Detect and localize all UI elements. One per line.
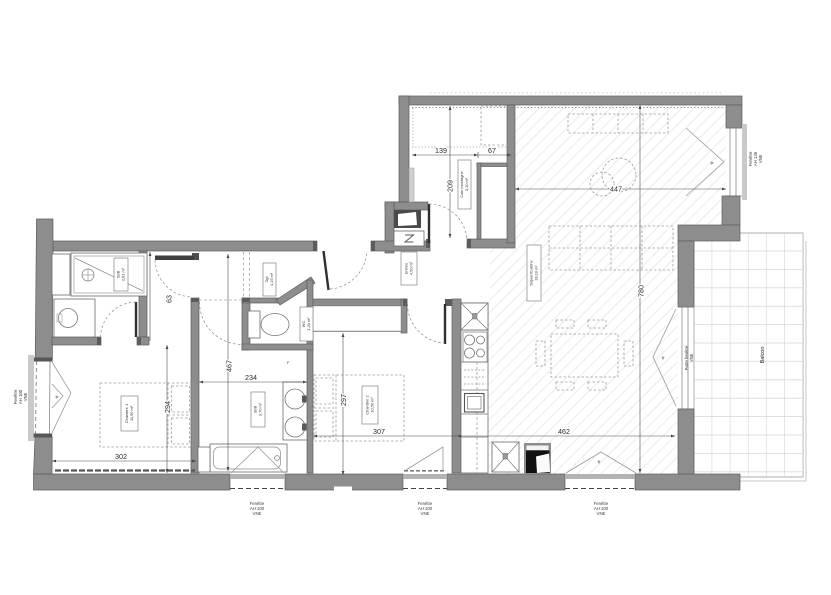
svg-text:209: 209 bbox=[446, 180, 455, 192]
svg-text:v: v bbox=[598, 459, 600, 464]
svg-text:67: 67 bbox=[488, 146, 496, 155]
svg-text:4,15 m²: 4,15 m² bbox=[269, 272, 274, 286]
svg-text:294: 294 bbox=[163, 401, 172, 413]
svg-text:3,70 m²: 3,70 m² bbox=[258, 402, 263, 416]
svg-text:10,50 m²: 10,50 m² bbox=[370, 397, 375, 413]
svg-text:3,10 m²: 3,10 m² bbox=[464, 177, 469, 191]
svg-text:VNE: VNE bbox=[421, 511, 430, 516]
svg-text:11,50 m²: 11,50 m² bbox=[129, 405, 134, 421]
svg-text:VNE: VNE bbox=[23, 392, 28, 401]
svg-text:VNE: VNE bbox=[597, 511, 606, 516]
svg-text:780: 780 bbox=[637, 285, 646, 297]
svg-text:1,30 m²: 1,30 m² bbox=[306, 317, 311, 331]
svg-text:447: 447 bbox=[610, 185, 622, 194]
svg-text:234: 234 bbox=[245, 373, 257, 382]
svg-text:63: 63 bbox=[165, 295, 174, 303]
svg-text:302: 302 bbox=[115, 452, 127, 461]
svg-text:467: 467 bbox=[225, 360, 234, 372]
svg-text:297: 297 bbox=[339, 394, 348, 406]
svg-text:28,10 m²: 28,10 m² bbox=[534, 265, 539, 281]
svg-text:139: 139 bbox=[435, 146, 447, 155]
svg-text:462: 462 bbox=[558, 427, 570, 436]
svg-text:v: v bbox=[709, 162, 714, 164]
svg-text:v: v bbox=[54, 396, 59, 398]
svg-text:VNE: VNE bbox=[758, 154, 763, 163]
svg-text:v: v bbox=[662, 355, 664, 360]
svg-text:Balcon: Balcon bbox=[760, 347, 766, 364]
svg-text:4,50 m²: 4,50 m² bbox=[409, 261, 414, 275]
svg-text:VNE: VNE bbox=[253, 511, 262, 516]
svg-text:307: 307 bbox=[373, 427, 385, 436]
svg-text:2,61 m²: 2,61 m² bbox=[121, 267, 126, 281]
svg-text:VNE: VNE bbox=[689, 353, 694, 362]
